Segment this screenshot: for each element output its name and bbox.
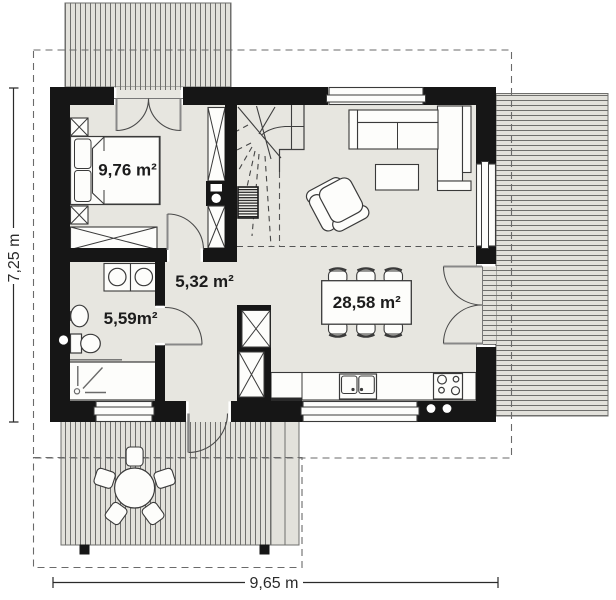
svg-text:28,58 m²: 28,58 m² <box>333 293 401 312</box>
svg-text:5,32 m²: 5,32 m² <box>175 272 234 291</box>
svg-text:9,65 m: 9,65 m <box>250 575 299 592</box>
svg-text:5,59m²: 5,59m² <box>104 309 158 328</box>
svg-text:9,76 m²: 9,76 m² <box>98 161 157 180</box>
svg-text:7,25 m: 7,25 m <box>6 234 23 283</box>
